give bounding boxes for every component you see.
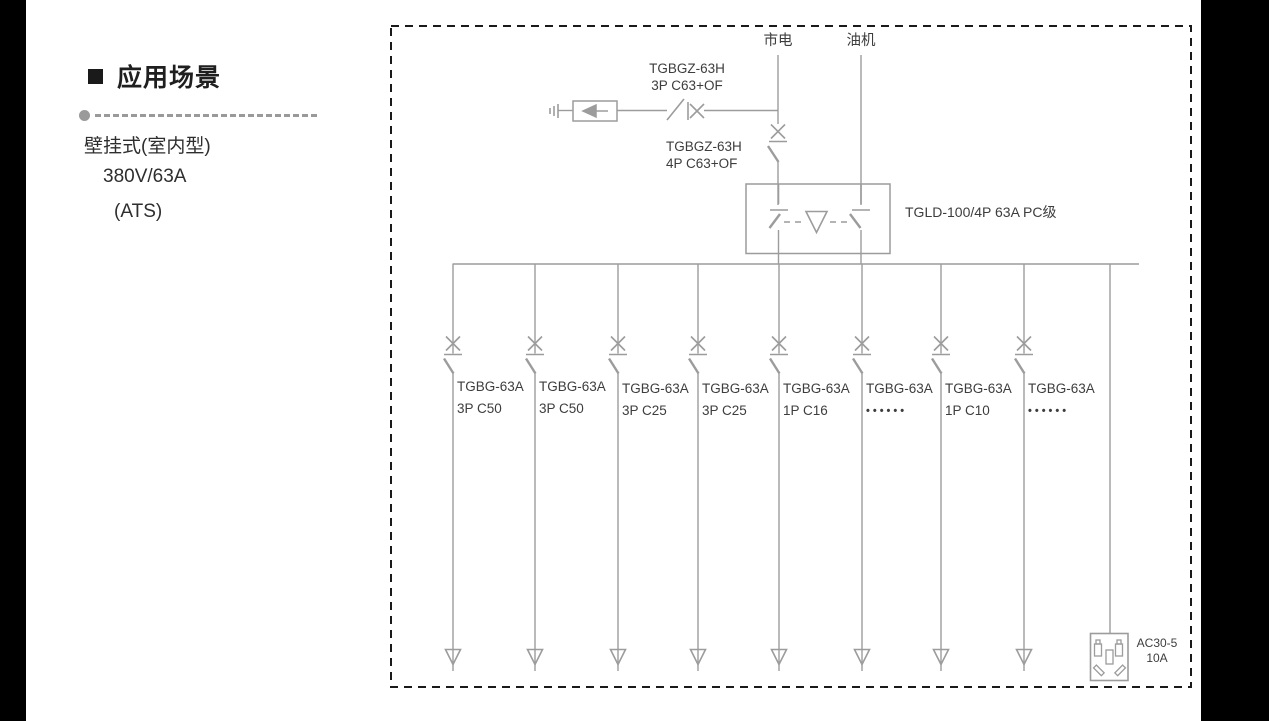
catalog-page: 应用场景 壁挂式(室内型) 380V/63A (ATS): [0, 0, 1269, 721]
main-breaker-label: TGBGZ-63H 4P C63+OF: [666, 138, 742, 172]
branch-label-6: TGBG-63A••••••: [866, 378, 933, 422]
spd-spur: [550, 99, 778, 121]
branch-label-2: TGBG-63A3P C50: [539, 376, 606, 420]
interlock-triangle-icon: [806, 212, 827, 233]
branch-feeder-8: [1015, 264, 1033, 671]
branch-feeder-3: [609, 264, 627, 671]
branch-label-7: TGBG-63A1P C10: [945, 378, 1012, 422]
mains-label: 市电: [748, 33, 808, 50]
ground-icon: [550, 104, 558, 118]
branch-label-8: TGBG-63A••••••: [1028, 378, 1095, 422]
generator-label: 油机: [831, 33, 891, 50]
diagram-dashed-border: [391, 26, 1191, 687]
spd-icon: [573, 101, 617, 121]
spd-breaker-label: TGBGZ-63H 3P C63+OF: [617, 60, 757, 94]
ats-symbol: [746, 184, 890, 264]
ats-label: TGLD-100/4P 63A PC级: [905, 204, 1056, 221]
branch-label-3: TGBG-63A3P C25: [622, 378, 689, 422]
branch-feeder-4: [689, 264, 707, 671]
branch-label-4: TGBG-63A3P C25: [702, 378, 769, 422]
branch-feeder-5: [770, 264, 788, 671]
socket-label: AC30-5 10A: [1130, 636, 1184, 666]
branch-feeder-2: [526, 264, 544, 671]
branch-label-5: TGBG-63A1P C16: [783, 378, 850, 422]
branch-feeder-1: [444, 264, 462, 671]
socket-icon: [1091, 634, 1129, 681]
branch-label-1: TGBG-63A3P C50: [457, 376, 524, 420]
breaker-icon: [667, 99, 704, 120]
branch-feeder-7: [932, 264, 950, 671]
mains-incoming-line: [768, 55, 787, 205]
single-line-diagram: [0, 0, 1269, 721]
branch-feeder-6: [853, 264, 871, 671]
